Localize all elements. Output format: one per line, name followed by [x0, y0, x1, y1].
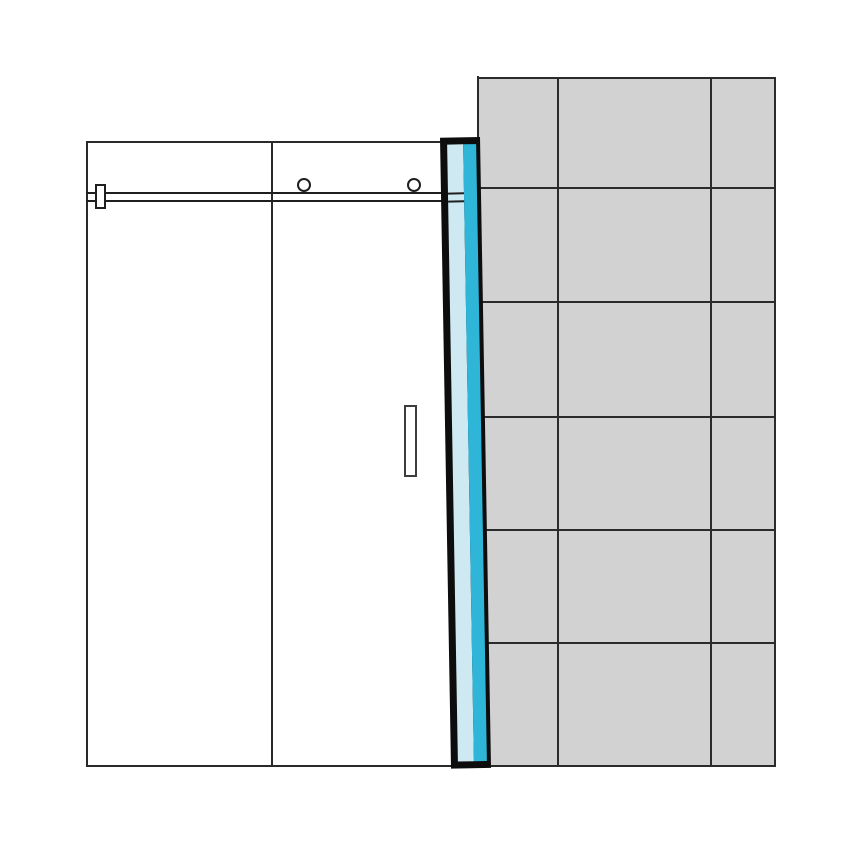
roller-left-icon	[297, 178, 311, 192]
tiled-wall	[470, 77, 776, 767]
rail-end-bracket	[95, 184, 106, 210]
tile-grout-horizontal-line	[472, 301, 774, 303]
rail-top-line	[86, 192, 461, 194]
door-handle	[404, 405, 417, 477]
panel-divider-line	[271, 141, 273, 767]
rail-line-through-profile-top	[448, 192, 464, 194]
wall-left-edge-mask	[452, 76, 479, 139]
tile-grout-horizontal-line	[472, 642, 774, 644]
rail-bottom-line	[86, 200, 461, 202]
shower-door-installation-diagram	[0, 0, 866, 845]
tile-grout-horizontal-line	[472, 529, 774, 531]
tile-grout-horizontal-lines	[472, 79, 774, 765]
tile-grout-horizontal-line	[472, 416, 774, 418]
tile-grout-horizontal-line	[472, 187, 774, 189]
rail-line-through-profile-bottom	[448, 200, 464, 202]
